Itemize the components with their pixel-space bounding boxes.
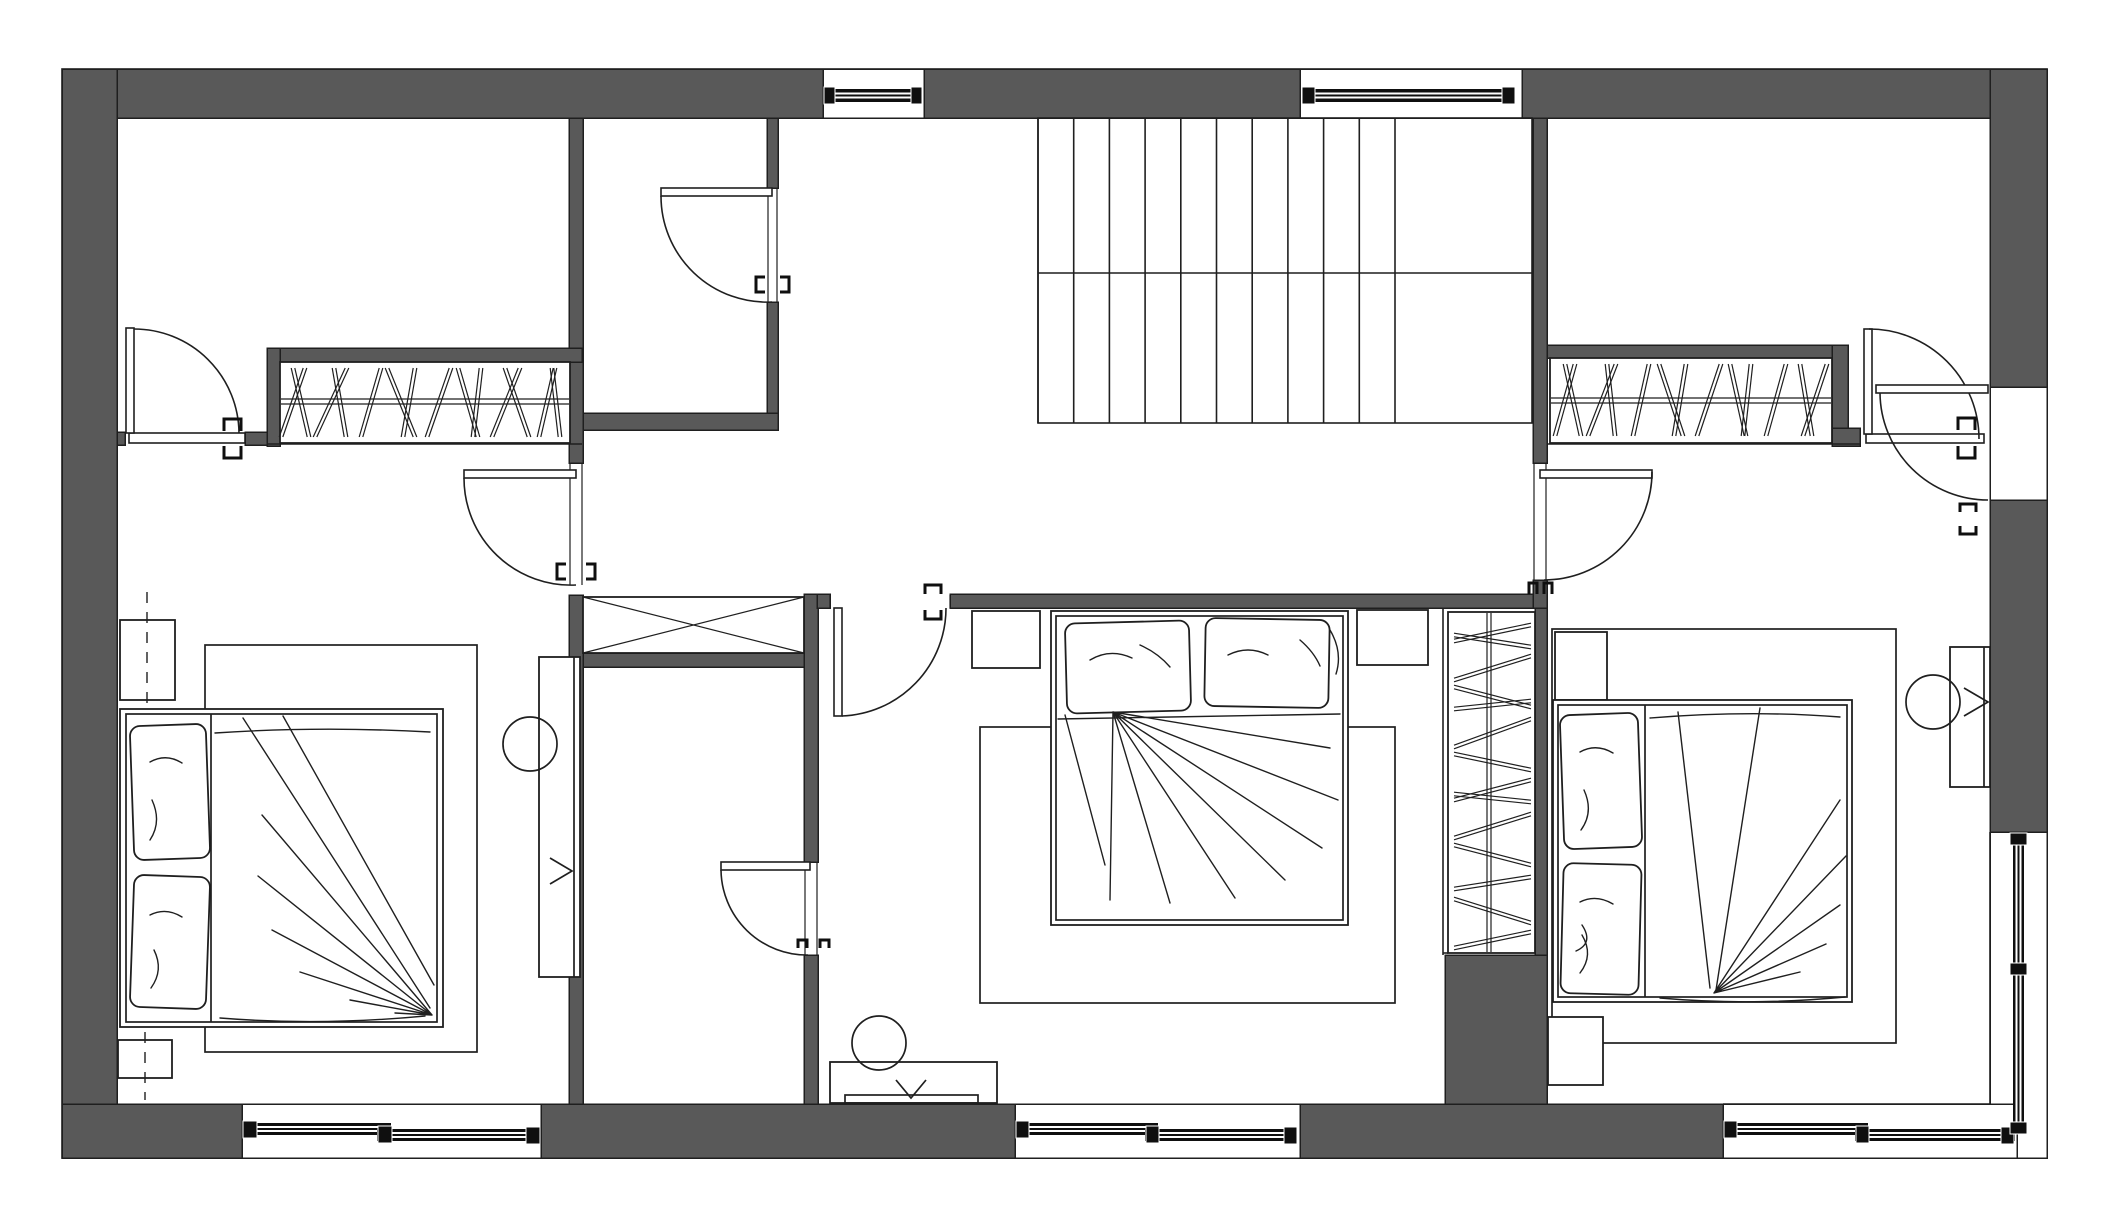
entry-recess-right bbox=[1990, 387, 2047, 500]
bedroom-middle-furniture bbox=[830, 610, 1428, 1103]
door-bedroom-middle bbox=[830, 585, 950, 716]
window-frame-cap bbox=[911, 87, 922, 104]
window-frame-cap bbox=[1284, 1127, 1297, 1144]
hall-east-wall-upper bbox=[1533, 118, 1547, 463]
window-frame-bar bbox=[2013, 970, 2024, 1128]
window-frame-bar bbox=[1304, 89, 1515, 102]
door-leaf-open bbox=[1540, 470, 1652, 478]
pillow bbox=[1204, 618, 1330, 708]
pillow bbox=[130, 875, 211, 1010]
nightstand bbox=[1357, 610, 1428, 665]
door-swing-arc bbox=[721, 870, 808, 955]
vanity-table bbox=[830, 1062, 997, 1103]
wc-top-east-wall-a bbox=[767, 118, 778, 188]
right-wall-b bbox=[1990, 500, 2047, 832]
tl-room-south-wall-b bbox=[245, 432, 267, 445]
door-wc-top bbox=[661, 188, 789, 302]
window-frame-bar bbox=[1855, 1129, 2015, 1141]
door-swing-arc bbox=[464, 478, 576, 585]
right-wall-a bbox=[1990, 69, 2047, 387]
door-leaf-open bbox=[1876, 385, 1988, 393]
window-frame-bar bbox=[245, 1123, 391, 1135]
closet-left-top bbox=[267, 348, 582, 362]
top-wall-a bbox=[62, 69, 823, 118]
door-swing-arc bbox=[842, 608, 946, 716]
hall-west-wall-upper bbox=[569, 118, 583, 463]
pillow bbox=[1065, 620, 1191, 713]
door-stop-icon bbox=[798, 940, 807, 948]
double-bed bbox=[1051, 611, 1348, 925]
window-frame-cap bbox=[378, 1126, 392, 1143]
door-stop-icon bbox=[1960, 504, 1976, 512]
pillow bbox=[1560, 713, 1643, 850]
closet-right-east bbox=[1832, 345, 1848, 428]
door-stop-icon bbox=[820, 940, 829, 948]
window-frame-cap bbox=[2010, 963, 2027, 975]
door-swing-arc bbox=[1544, 472, 1652, 580]
door-swing-arc bbox=[1869, 329, 1979, 439]
left-wall bbox=[62, 69, 117, 1158]
bottom-wall-a bbox=[62, 1104, 242, 1158]
door-stop-icon bbox=[925, 585, 941, 594]
door-leaf-closed bbox=[129, 433, 245, 443]
closet-right-top bbox=[1547, 345, 1848, 358]
window-frame-cap bbox=[1856, 1126, 1869, 1143]
door-stop-icon bbox=[1958, 418, 1975, 430]
door-bedroom-right bbox=[1529, 463, 1652, 594]
double-bed bbox=[1553, 700, 1852, 1002]
door-stop-icon bbox=[756, 277, 765, 292]
wc-top-east-wall-b bbox=[767, 302, 778, 430]
pillow bbox=[1560, 863, 1641, 995]
nightstand bbox=[1555, 632, 1607, 700]
staircase bbox=[1038, 118, 1532, 423]
door-leaf-open bbox=[834, 608, 842, 716]
door-stop-icon bbox=[557, 564, 566, 579]
wc-low-east-wall-a bbox=[804, 594, 818, 862]
window-frame-bar bbox=[2013, 835, 2024, 975]
door-leaf-closed bbox=[1866, 434, 1984, 443]
window-frame-cap bbox=[1016, 1121, 1029, 1138]
window-frame-cap bbox=[2010, 1122, 2027, 1134]
nightstand bbox=[972, 611, 1040, 668]
door-leaf-open bbox=[126, 328, 134, 433]
door-leaf-open bbox=[464, 470, 576, 478]
door-top-left-room bbox=[126, 328, 245, 458]
bottom-wall-c bbox=[1300, 1104, 1723, 1158]
wardrobe-east-wall bbox=[1535, 608, 1547, 955]
window-frame-bar bbox=[377, 1129, 537, 1141]
mb-north-wall-stub bbox=[817, 594, 830, 608]
window-frame-cap bbox=[1146, 1126, 1159, 1143]
door-stop-icon bbox=[1544, 583, 1552, 594]
nightstand bbox=[1548, 1017, 1603, 1085]
window-frame-cap bbox=[1302, 87, 1315, 104]
window-frame-cap bbox=[1502, 87, 1515, 104]
shaft-south-wall bbox=[583, 653, 804, 667]
top-wall-c bbox=[1522, 69, 2047, 118]
floor-plan-canvas bbox=[0, 0, 2108, 1219]
door-swing-arc bbox=[1880, 393, 1988, 500]
bedroom-left-furniture bbox=[118, 592, 580, 1100]
window-frame-bar bbox=[827, 89, 917, 102]
floor-plan-drawing bbox=[0, 0, 2108, 1219]
double-bed bbox=[120, 709, 443, 1027]
door-leaf-open bbox=[661, 188, 772, 196]
door-bedroom-left bbox=[464, 463, 595, 585]
door-stop-icon bbox=[224, 446, 241, 458]
wardrobe-column bbox=[1445, 955, 1547, 1104]
door-stop-icon bbox=[586, 564, 595, 579]
mb-north-wall-main bbox=[950, 594, 1533, 608]
window-frame-cap bbox=[2010, 833, 2027, 845]
service-shaft bbox=[583, 597, 804, 653]
door-stop-icon bbox=[780, 277, 789, 292]
door-stop-icon bbox=[1960, 526, 1976, 534]
bedroom-right-furniture bbox=[1548, 629, 1990, 1085]
closet-left-interior bbox=[280, 362, 570, 443]
window-frame-cap bbox=[526, 1127, 540, 1144]
wc-top-south-wall bbox=[583, 413, 778, 430]
wc-low-east-wall-b bbox=[804, 955, 818, 1104]
window-frame-cap bbox=[243, 1121, 257, 1138]
window-frame-cap bbox=[824, 87, 835, 104]
door-stop-icon bbox=[925, 610, 941, 619]
door-leaf-open bbox=[1864, 329, 1872, 434]
door-swing-arc bbox=[134, 329, 239, 433]
tl-room-south-wall-a bbox=[117, 432, 125, 445]
top-wall-b bbox=[924, 69, 1300, 118]
pillow bbox=[130, 724, 211, 861]
window-frame-bar bbox=[1726, 1123, 1868, 1135]
door-wc-lower bbox=[721, 862, 829, 955]
window-frame-bar bbox=[1018, 1123, 1158, 1135]
bottom-wall-b bbox=[541, 1104, 1015, 1158]
closet-left-west bbox=[267, 348, 280, 446]
window-frame-bar bbox=[1145, 1129, 1297, 1141]
door-stop-icon bbox=[1958, 446, 1975, 458]
window-frame-cap bbox=[1724, 1121, 1737, 1138]
door-leaf-open bbox=[721, 862, 810, 870]
